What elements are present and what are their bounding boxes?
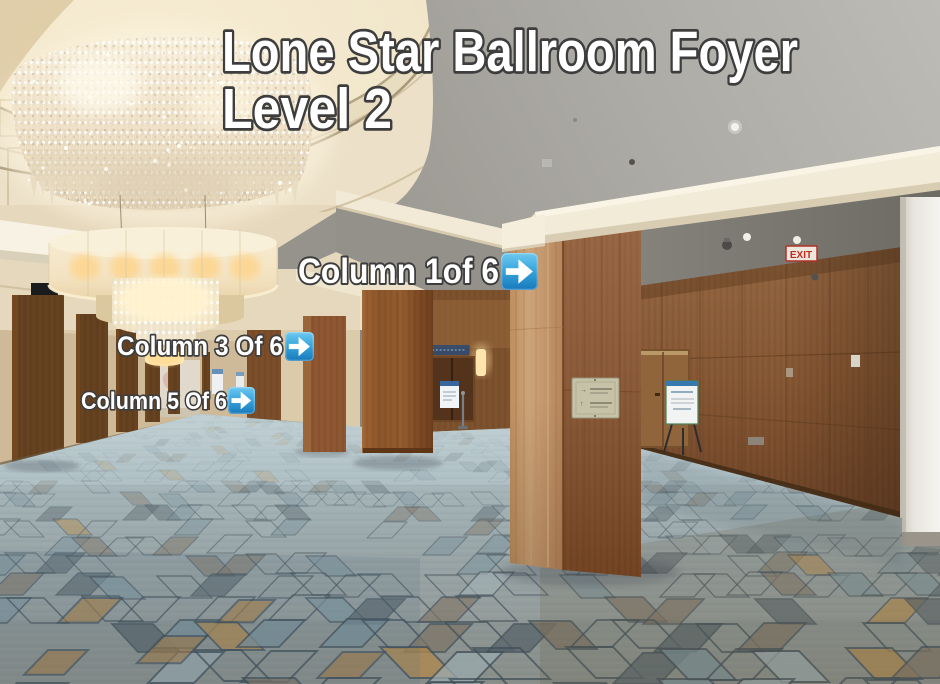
svg-text:Lone Star Ballroom Foyer: Lone Star Ballroom Foyer xyxy=(222,20,798,84)
svg-text:→: → xyxy=(580,387,587,394)
svg-text:Column 5 Of 6: Column 5 Of 6 xyxy=(81,388,227,415)
svg-text:Level 2: Level 2 xyxy=(222,77,392,141)
svg-text:Column 1of 6: Column 1of 6 xyxy=(298,252,499,291)
svg-text:↑: ↑ xyxy=(580,401,584,408)
svg-text:Column 3 Of 6: Column 3 Of 6 xyxy=(117,331,283,361)
svg-text:EXIT: EXIT xyxy=(790,250,812,261)
